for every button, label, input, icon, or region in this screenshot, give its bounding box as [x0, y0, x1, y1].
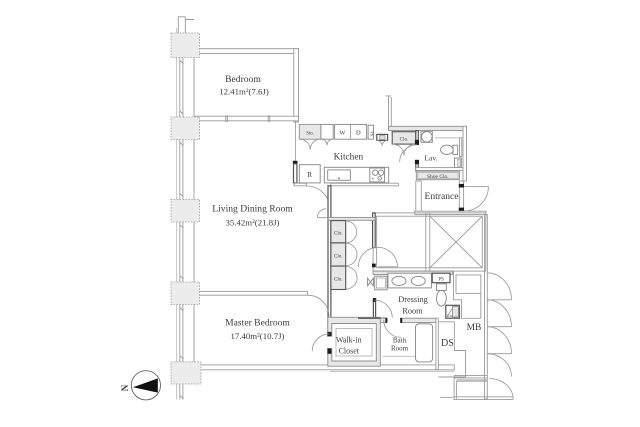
- svg-text:Bedroom: Bedroom: [225, 74, 261, 85]
- svg-text:Kitchen: Kitchen: [334, 153, 364, 163]
- svg-text:Living Dining Room: Living Dining Room: [212, 204, 293, 215]
- svg-text:35.42m²(21.8J): 35.42m²(21.8J): [226, 218, 280, 228]
- svg-text:Lav.: Lav.: [424, 153, 437, 162]
- svg-text:12.41m²(7.6J): 12.41m²(7.6J): [219, 87, 269, 97]
- svg-text:Shoe Clo.: Shoe Clo.: [427, 174, 449, 180]
- svg-text:Master Bedroom: Master Bedroom: [225, 318, 290, 329]
- svg-text:Clo.: Clo.: [334, 253, 343, 259]
- svg-text:Clo.: Clo.: [334, 277, 343, 283]
- svg-text:Entrance: Entrance: [424, 191, 458, 202]
- svg-text:Closet: Closet: [339, 347, 360, 356]
- svg-text:Room: Room: [402, 307, 423, 316]
- svg-text:R: R: [307, 171, 312, 179]
- svg-text:Walk-in: Walk-in: [336, 336, 362, 345]
- svg-text:DS: DS: [441, 338, 454, 349]
- svg-text:W: W: [339, 130, 346, 137]
- svg-text:Bath: Bath: [393, 337, 407, 345]
- svg-text:La.: La.: [447, 313, 452, 318]
- svg-text:Dressing: Dressing: [398, 295, 428, 304]
- svg-text:Room: Room: [391, 345, 409, 353]
- svg-text:D: D: [356, 130, 361, 137]
- svg-text:Sto.: Sto.: [306, 132, 314, 137]
- svg-text:N: N: [120, 384, 130, 391]
- svg-text:PS: PS: [438, 278, 444, 283]
- svg-text:Clo.: Clo.: [400, 136, 409, 142]
- svg-text:PS: PS: [370, 131, 375, 136]
- svg-text:Clo.: Clo.: [334, 231, 343, 237]
- svg-text:MB: MB: [467, 323, 482, 333]
- svg-text:17.40m²(10.7J): 17.40m²(10.7J): [231, 331, 285, 341]
